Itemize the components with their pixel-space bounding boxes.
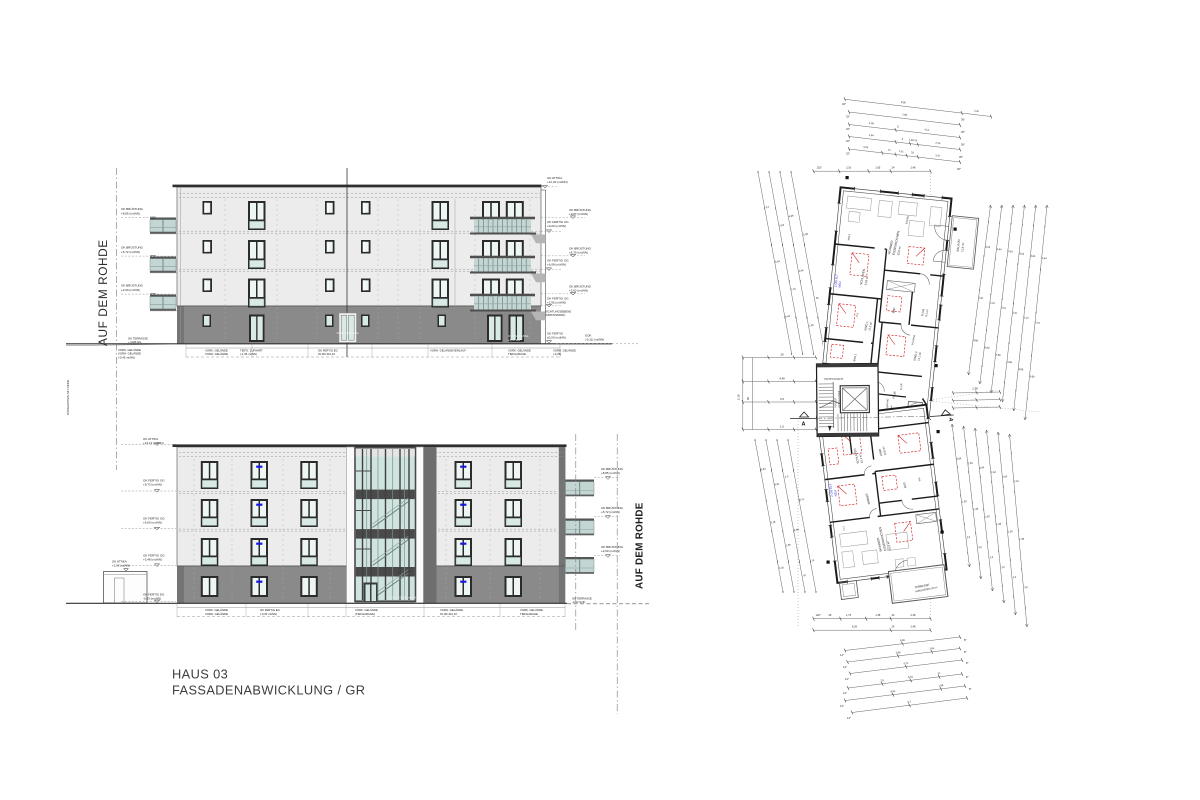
svg-text:+0,47 EG: +0,47 EG bbox=[508, 338, 521, 342]
svg-text:(-0,03 müNN): (-0,03 müNN) bbox=[260, 612, 277, 616]
svg-text:36°: 36° bbox=[961, 118, 965, 122]
svg-text:+6,75 (müNN): +6,75 (müNN) bbox=[569, 251, 588, 255]
svg-text:+13,13 (müNN): +13,13 (müNN) bbox=[143, 441, 164, 445]
svg-text:8°: 8° bbox=[966, 675, 968, 679]
svg-text:+2,98 (müNN): +2,98 (müNN) bbox=[112, 563, 130, 567]
svg-text:FLUR: FLUR bbox=[900, 383, 903, 390]
svg-text:2,64: 2,64 bbox=[979, 466, 985, 470]
svg-text:1,38: 1,38 bbox=[1008, 530, 1014, 534]
svg-text:4,89: 4,89 bbox=[1018, 368, 1024, 372]
svg-text:AUF DEM ROHDE: AUF DEM ROHDE bbox=[635, 502, 646, 589]
svg-text:2,01: 2,01 bbox=[1024, 316, 1030, 320]
svg-text:14°: 14° bbox=[845, 677, 849, 681]
svg-text:+9,87 (müNN): +9,87 (müNN) bbox=[569, 212, 588, 216]
svg-text:A: A bbox=[802, 422, 806, 428]
svg-text:102°: 102° bbox=[816, 614, 821, 617]
svg-text:36°: 36° bbox=[957, 167, 961, 171]
svg-text:8°: 8° bbox=[964, 650, 966, 654]
svg-text:(TIEFGARAGE): (TIEFGARAGE) bbox=[355, 612, 375, 616]
svg-text:1,38: 1,38 bbox=[985, 515, 991, 519]
svg-text:3,64: 3,64 bbox=[1042, 257, 1048, 261]
svg-text:1,73: 1,73 bbox=[846, 614, 851, 617]
svg-text:FASSADENABWICKLUNG / GR: FASSADENABWICKLUNG / GR bbox=[172, 683, 365, 698]
svg-text:36°: 36° bbox=[961, 130, 965, 134]
svg-text:AUF DEM ROHDE: AUF DEM ROHDE bbox=[96, 239, 110, 346]
svg-text:4,89: 4,89 bbox=[1029, 375, 1035, 379]
svg-text:32°: 32° bbox=[846, 127, 850, 131]
svg-text:+6,08 (müNN): +6,08 (müNN) bbox=[547, 263, 566, 267]
svg-text:(-0,25): (-0,25) bbox=[553, 352, 561, 356]
svg-text:TIEFGARAGE: TIEFGARAGE bbox=[508, 352, 526, 356]
svg-text:8°: 8° bbox=[964, 638, 966, 642]
svg-text:+6,60 (müNN): +6,60 (müNN) bbox=[143, 521, 162, 525]
svg-text:(-0,11) (müNN): (-0,11) (müNN) bbox=[585, 338, 604, 342]
svg-text:HAUS 03: HAUS 03 bbox=[172, 667, 228, 682]
svg-text:1,38: 1,38 bbox=[972, 387, 978, 391]
svg-text:A: A bbox=[947, 417, 953, 422]
svg-text:±0,00 = 112,10 müNN: ±0,00 = 112,10 müNN bbox=[388, 596, 416, 600]
svg-text:14°: 14° bbox=[840, 653, 844, 657]
svg-text:+5,72 (müNN): +5,72 (müNN) bbox=[121, 250, 140, 254]
svg-text:16 STG 17,5/28: 16 STG 17,5/28 bbox=[838, 390, 841, 408]
svg-text:20: 20 bbox=[780, 352, 784, 356]
svg-text:1,0: 1,0 bbox=[780, 424, 784, 428]
svg-text:2,48: 2,48 bbox=[911, 166, 916, 169]
svg-text:14°: 14° bbox=[840, 704, 844, 708]
svg-text:VORH. GELÄNDE: VORH. GELÄNDE bbox=[205, 612, 228, 616]
svg-text:VORH. GELÄNDE: VORH. GELÄNDE bbox=[205, 352, 228, 356]
svg-text:2,64: 2,64 bbox=[1002, 475, 1008, 479]
svg-text:32°: 32° bbox=[842, 102, 846, 106]
svg-text:1,38: 1,38 bbox=[1019, 538, 1025, 541]
svg-text:+2,95 (müNN): +2,95 (müNN) bbox=[547, 301, 566, 305]
svg-text:2,48: 2,48 bbox=[911, 625, 916, 628]
svg-text:+9,20 (müNN): +9,20 (müNN) bbox=[547, 224, 566, 228]
svg-text:1,65: 1,65 bbox=[875, 166, 880, 169]
svg-text:32°: 32° bbox=[846, 152, 850, 156]
svg-text:BÜRGERSTEIG MIT RINNE: BÜRGERSTEIG MIT RINNE bbox=[66, 379, 70, 415]
svg-text:(SPRITZWAND): (SPRITZWAND) bbox=[545, 313, 565, 317]
svg-text:(-1,35 müNN): (-1,35 müNN) bbox=[240, 352, 257, 356]
svg-text:2,64: 2,64 bbox=[991, 471, 997, 475]
svg-text:+9,73 (müNN): +9,73 (müNN) bbox=[143, 483, 162, 487]
svg-text:1,38: 1,38 bbox=[996, 523, 1002, 527]
svg-text:2,48: 2,48 bbox=[911, 614, 916, 617]
svg-text:8°: 8° bbox=[966, 661, 968, 665]
svg-text:+3,62 (müNN): +3,62 (müNN) bbox=[569, 289, 588, 293]
svg-text:±0,00 (müNN): ±0,00 (müNN) bbox=[547, 336, 566, 340]
svg-text:±0,00 EINGANG: ±0,00 EINGANG bbox=[336, 331, 359, 335]
svg-text:5,18: 5,18 bbox=[737, 394, 741, 400]
svg-text:±0,00=112,10: ±0,00=112,10 bbox=[318, 352, 335, 356]
svg-text:102°: 102° bbox=[817, 166, 822, 169]
svg-text:±0,00=112,10: ±0,00=112,10 bbox=[440, 612, 457, 616]
svg-text:3,5: 3,5 bbox=[780, 397, 784, 401]
svg-text:+8,85 (müNN): +8,85 (müNN) bbox=[121, 211, 140, 215]
svg-text:+12,40 (müNN): +12,40 (müNN) bbox=[547, 180, 568, 184]
svg-text:32°: 32° bbox=[846, 115, 850, 119]
svg-text:TIEFGARAGE: TIEFGARAGE bbox=[520, 612, 538, 616]
svg-text:TREPPENHAUS: TREPPENHAUS bbox=[824, 377, 844, 381]
svg-text:+ GMF EG: + GMF EG bbox=[128, 340, 141, 344]
svg-text:14°: 14° bbox=[843, 691, 847, 695]
svg-text:+2,60 (müNN): +2,60 (müNN) bbox=[121, 288, 140, 292]
svg-text:-0,42 GOK: -0,42 GOK bbox=[572, 600, 586, 604]
svg-text:NEU: NEU bbox=[837, 281, 842, 288]
svg-text:2,64: 2,64 bbox=[1014, 480, 1020, 483]
svg-text:2,01: 2,01 bbox=[1035, 321, 1041, 325]
svg-text:14°: 14° bbox=[843, 665, 847, 669]
svg-text:14°: 14° bbox=[847, 716, 851, 720]
svg-text:8°: 8° bbox=[969, 687, 971, 691]
svg-text:36°: 36° bbox=[959, 155, 963, 159]
svg-text:VORH. GELÄNDEVERLAUF: VORH. GELÄNDEVERLAUF bbox=[430, 348, 466, 352]
svg-text:4,49: 4,49 bbox=[779, 376, 785, 380]
svg-text:NEU: NEU bbox=[833, 490, 838, 497]
svg-text:2,16: 2,16 bbox=[846, 166, 851, 169]
svg-text:(-0,45 müNN): (-0,45 müNN) bbox=[118, 355, 135, 359]
svg-text:36°: 36° bbox=[961, 143, 965, 147]
svg-text:+3,48 (müNN): +3,48 (müNN) bbox=[143, 558, 162, 562]
svg-text:32°: 32° bbox=[846, 139, 850, 143]
svg-text:6,29: 6,29 bbox=[852, 625, 857, 628]
svg-text:1,38: 1,38 bbox=[875, 614, 880, 617]
